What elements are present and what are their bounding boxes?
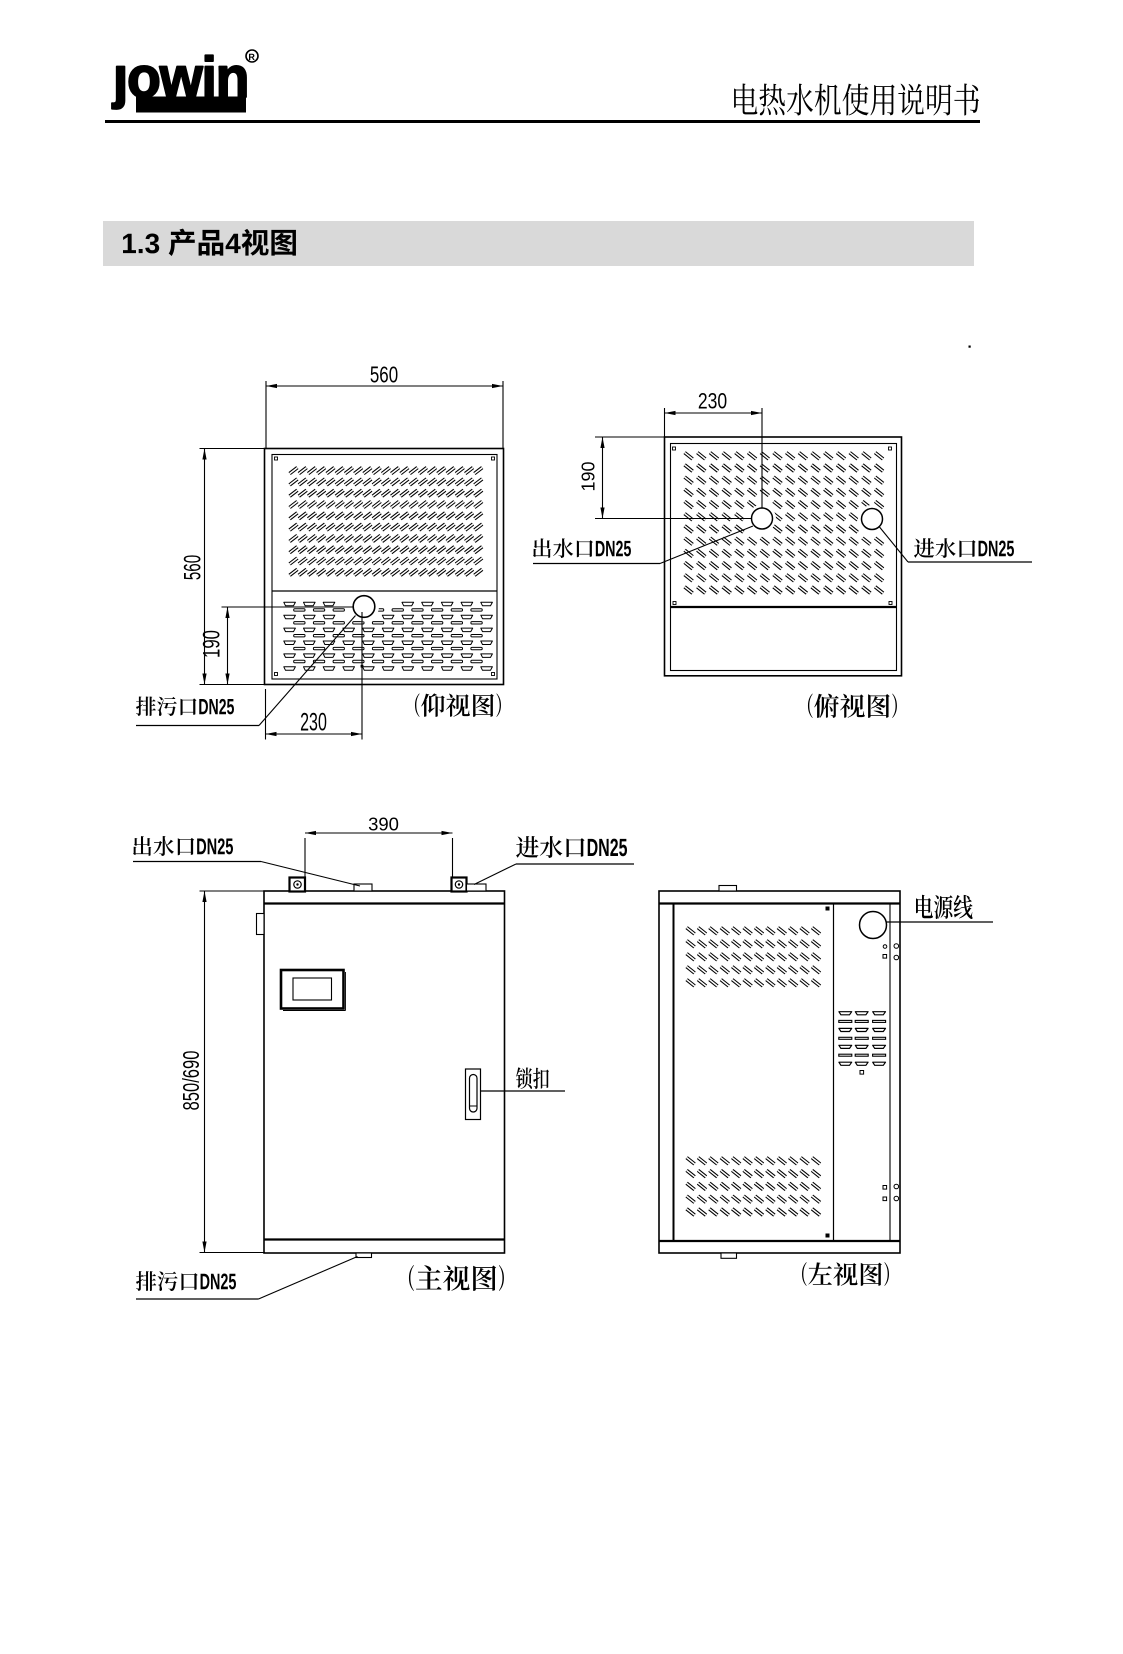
- svg-text:390: 390: [368, 814, 399, 835]
- svg-text:190: 190: [579, 461, 599, 491]
- svg-text:230: 230: [300, 709, 327, 736]
- svg-text:230: 230: [698, 390, 727, 415]
- svg-text:190: 190: [199, 630, 226, 658]
- svg-text:560: 560: [370, 362, 398, 388]
- svg-text:850/690: 850/690: [179, 1051, 204, 1111]
- svg-text:560: 560: [180, 555, 206, 580]
